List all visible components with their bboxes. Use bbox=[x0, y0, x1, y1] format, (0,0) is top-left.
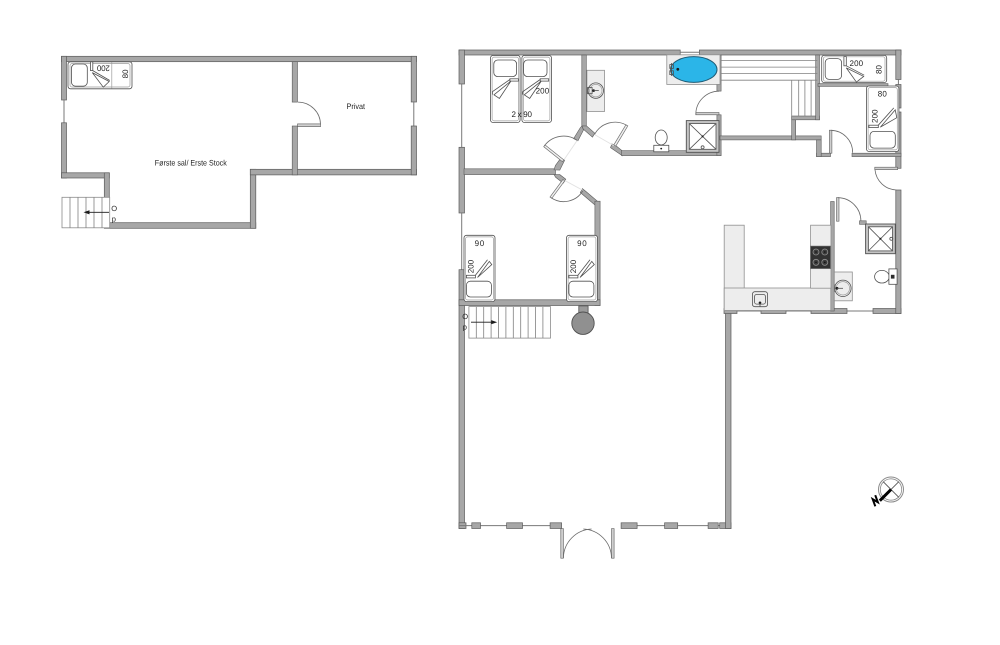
svg-text:200: 200 bbox=[536, 87, 550, 96]
svg-text:200: 200 bbox=[569, 259, 578, 273]
svg-text:200: 200 bbox=[871, 109, 880, 123]
svg-text:200: 200 bbox=[850, 59, 864, 68]
svg-text:O: O bbox=[462, 312, 468, 321]
svg-text:90: 90 bbox=[475, 239, 485, 248]
svg-text:80: 80 bbox=[121, 69, 130, 79]
svg-text:80: 80 bbox=[874, 64, 883, 74]
svg-text:200: 200 bbox=[96, 64, 110, 73]
svg-text:p: p bbox=[463, 323, 467, 332]
svg-text:2 x 90: 2 x 90 bbox=[511, 110, 532, 119]
svg-text:Privat: Privat bbox=[347, 102, 366, 111]
svg-text:p: p bbox=[112, 214, 116, 223]
svg-text:Første sal/ Erste Stock: Første sal/ Erste Stock bbox=[155, 159, 228, 168]
svg-text:80: 80 bbox=[878, 90, 888, 99]
svg-text:90: 90 bbox=[577, 239, 587, 248]
svg-text:200: 200 bbox=[467, 259, 476, 273]
svg-text:O: O bbox=[111, 204, 117, 213]
